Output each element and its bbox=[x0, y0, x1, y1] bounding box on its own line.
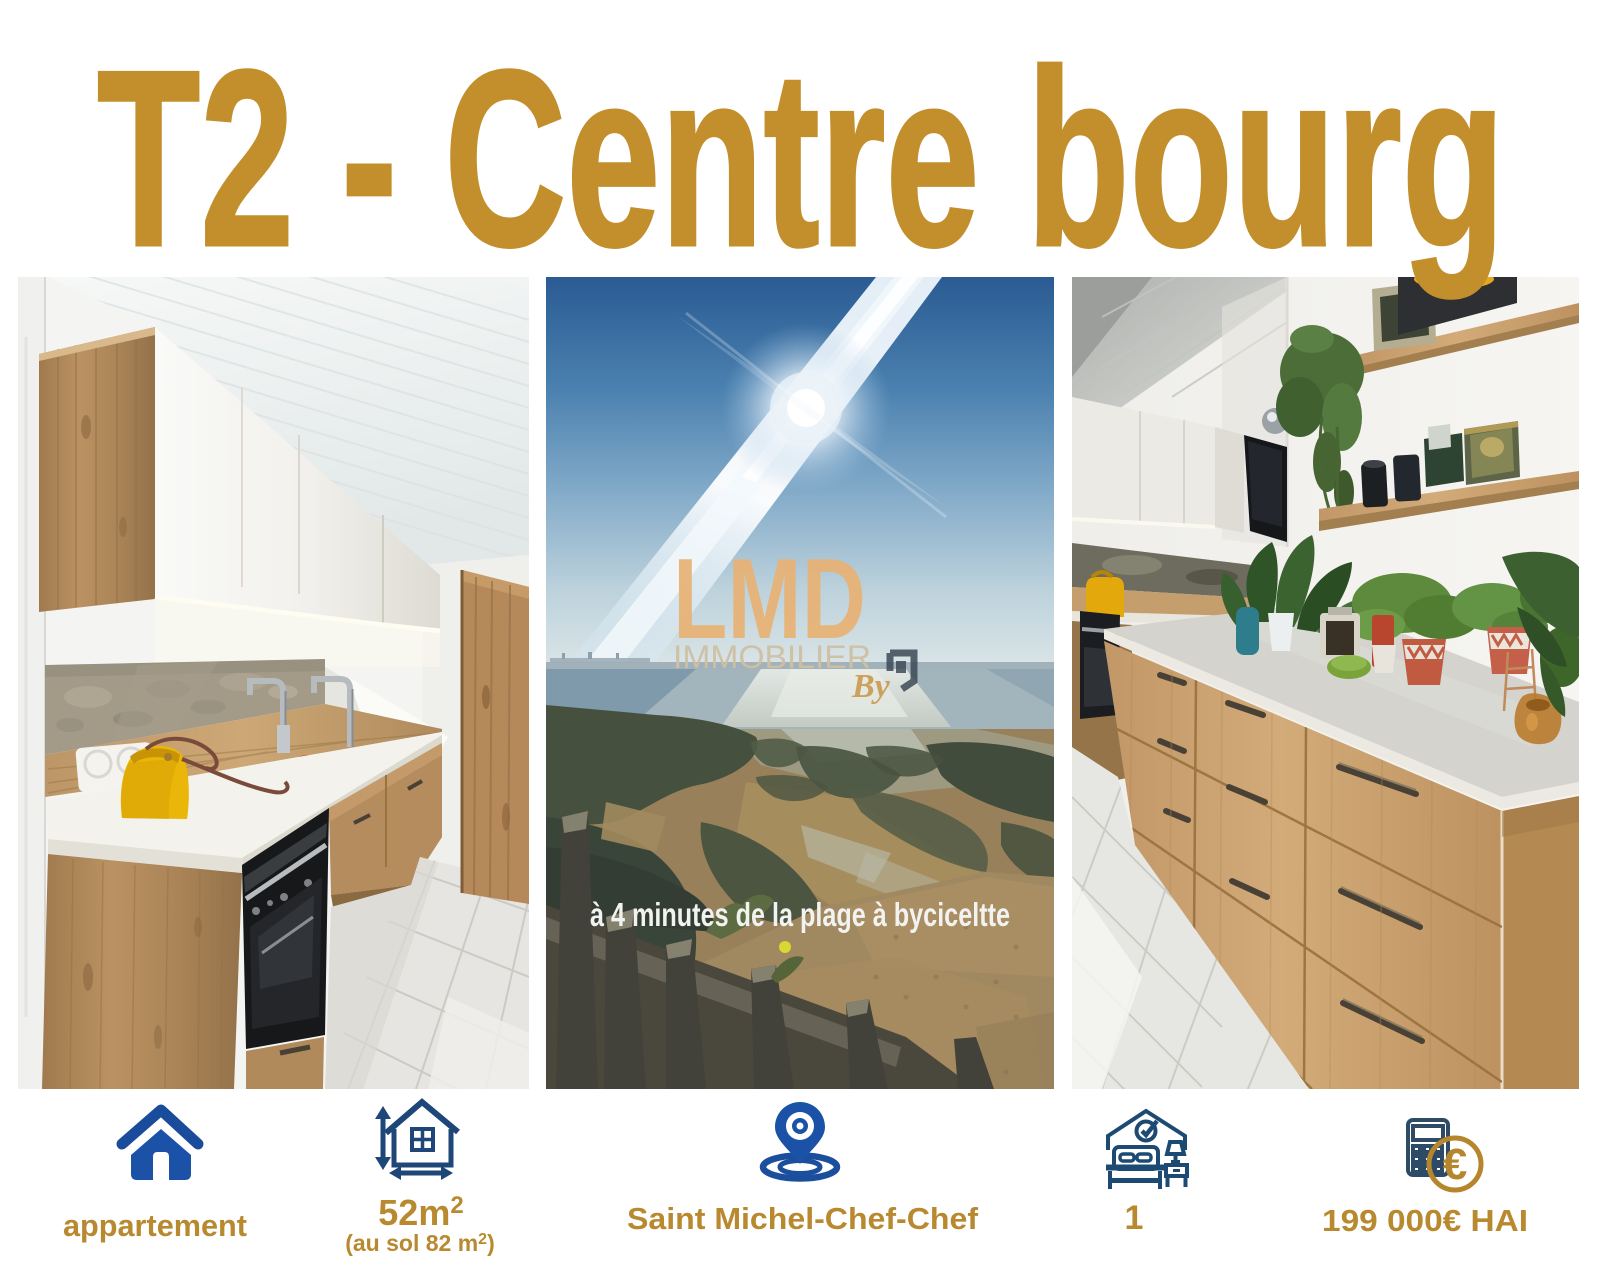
svg-text:T2 - Centre bourg: T2 - Centre bourg bbox=[97, 19, 1505, 299]
svg-text:By: By bbox=[851, 668, 891, 705]
svg-text:1: 1 bbox=[1125, 1199, 1144, 1237]
svg-text:à 4 minutes de la plage à byci: à 4 minutes de la plage à byciceltte bbox=[590, 896, 1010, 933]
svg-text:IMMOBILIER: IMMOBILIER bbox=[673, 639, 871, 675]
svg-text:€: € bbox=[1443, 1140, 1467, 1189]
svg-text:199 000€ HAI: 199 000€ HAI bbox=[1322, 1203, 1528, 1238]
svg-text:52m2: 52m2 bbox=[378, 1192, 463, 1233]
svg-text:appartement: appartement bbox=[63, 1208, 247, 1243]
svg-text:(au sol 82 m2): (au sol 82 m2) bbox=[345, 1230, 495, 1256]
svg-text:Saint Michel-Chef-Chef: Saint Michel-Chef-Chef bbox=[627, 1201, 979, 1236]
